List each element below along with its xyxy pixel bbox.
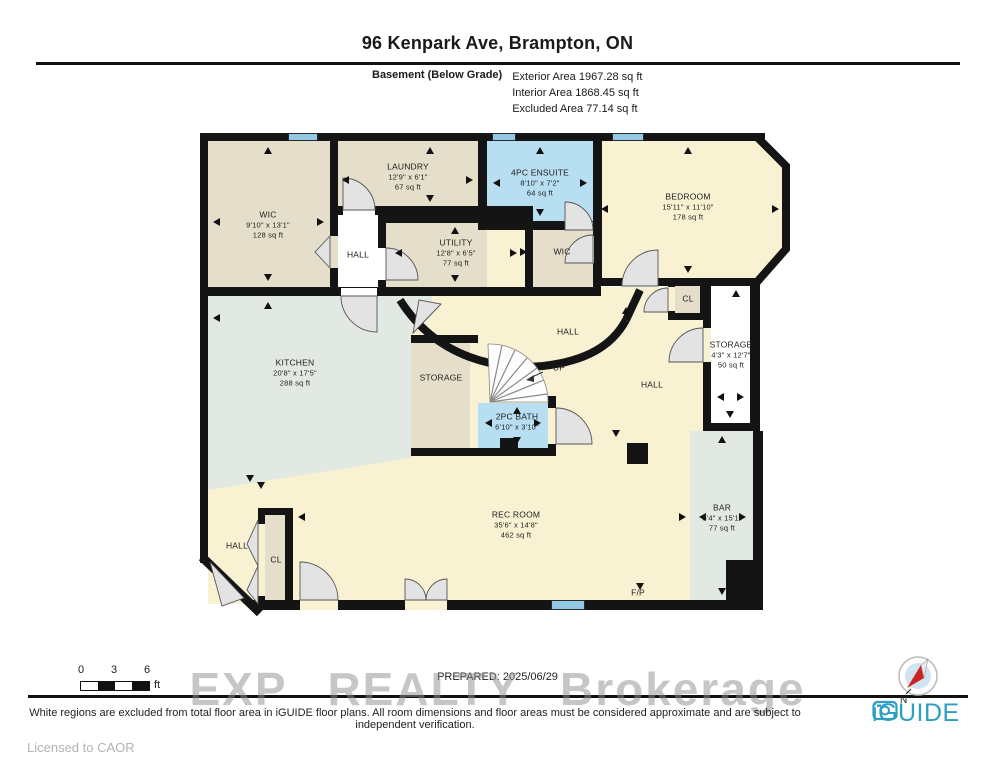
wall-storage-right-bottom: [705, 423, 760, 431]
label-wic2: WIC: [553, 246, 570, 257]
wall-bath-bottom: [403, 448, 556, 456]
floor-label: Basement (Below Grade): [372, 69, 502, 117]
door-opening-rec2: [405, 600, 447, 610]
label-bedroom: BEDROOM15'11" x 11'10"178 sq ft: [662, 192, 713, 223]
door-opening-kitchen: [341, 288, 377, 296]
door-opening-rec1: [300, 600, 338, 610]
label-storage-mid: STORAGE: [420, 372, 463, 383]
door-opening-cl1: [668, 287, 675, 311]
page-title: 96 Kenpark Ave, Brampton, ON: [0, 33, 995, 54]
door-opening-ensuite: [565, 222, 593, 230]
bath-plumbing-stub: [500, 438, 518, 448]
label-hall4: HALL: [226, 540, 248, 551]
wall-mid-horizontal: [200, 287, 601, 296]
label-storage-right: STORAGE4'3" x 12'7"50 sq ft: [710, 340, 753, 371]
label-ensuite: 4PC ENSUITE8'10" x 7'2"64 sq ft: [511, 168, 569, 199]
door-opening-laundry: [343, 207, 375, 215]
label-up: UP: [553, 362, 565, 373]
door-opening-bath: [548, 408, 556, 444]
excluded-area: Excluded Area 77.14 sq ft: [512, 101, 642, 117]
label-utility: UTILITY12'8" x 6'5"77 sq ft: [436, 238, 475, 269]
window-top-3: [612, 133, 644, 141]
wic2-room: [533, 230, 593, 287]
wall-ensuite-left: [478, 133, 487, 230]
wall-cl2-left-b: [258, 596, 265, 608]
wall-utility-right: [525, 206, 533, 296]
interior-area: Interior Area 1868.45 sq ft: [512, 85, 642, 101]
wall-storage-mid-left: [403, 335, 411, 456]
label-fp: F/P: [631, 587, 645, 598]
iguide-logo: iGUIDE: [872, 699, 960, 728]
wall-cl2-left-a: [258, 508, 265, 524]
window-bottom: [551, 600, 585, 610]
door-opening-wic2: [593, 236, 601, 263]
column-hall: [627, 443, 648, 464]
label-bath: 2PC BATH6'10" x 3'10": [495, 412, 539, 433]
label-wic: WIC9'10" x 13'1"128 sq ft: [246, 210, 290, 241]
label-recroom: REC ROOM35'6" x 14'8"462 sq ft: [492, 510, 540, 541]
floorplan-page: 96 Kenpark Ave, Brampton, ON Basement (B…: [0, 0, 995, 768]
wall-bar-notch: [726, 560, 760, 604]
label-kitchen: KITCHEN20'8" x 17'5"288 sq ft: [273, 358, 317, 389]
storage-mid-room: [411, 343, 470, 448]
label-cl1: CL: [682, 293, 693, 304]
floor-legend: Basement (Below Grade) Exterior Area 196…: [372, 69, 642, 117]
column-kitchen: [322, 446, 342, 466]
area-summary: Exterior Area 1967.28 sq ft Interior Are…: [512, 69, 642, 117]
license-text: Licensed to CAOR: [27, 740, 135, 755]
wall-bedroom-left: [593, 133, 601, 295]
iguide-brand-text: iGUIDE: [872, 699, 960, 728]
wall-cl1-bottom: [668, 313, 708, 320]
door-opening-utility: [378, 248, 386, 280]
label-hall1: HALL: [347, 249, 369, 260]
label-hall2: HALL: [557, 326, 579, 337]
label-bar: BAR5'4" x 15'1"77 sq ft: [702, 503, 741, 534]
wall-storage-mid-top: [403, 335, 478, 343]
wall-cl2-right: [285, 508, 293, 604]
window-top-1: [288, 133, 318, 141]
label-hall3: HALL: [641, 379, 663, 390]
wall-left: [200, 133, 208, 563]
header-divider: [36, 62, 960, 65]
exterior-area: Exterior Area 1967.28 sq ft: [512, 69, 642, 85]
door-opening-bedroom: [622, 278, 658, 286]
label-laundry: LAUNDRY12'9" x 6'1"67 sq ft: [387, 162, 429, 193]
label-cl2: CL: [270, 554, 281, 565]
disclaimer-text: White regions are excluded from total fl…: [0, 707, 830, 731]
door-opening-wic: [330, 236, 338, 268]
window-top-2: [492, 133, 516, 141]
